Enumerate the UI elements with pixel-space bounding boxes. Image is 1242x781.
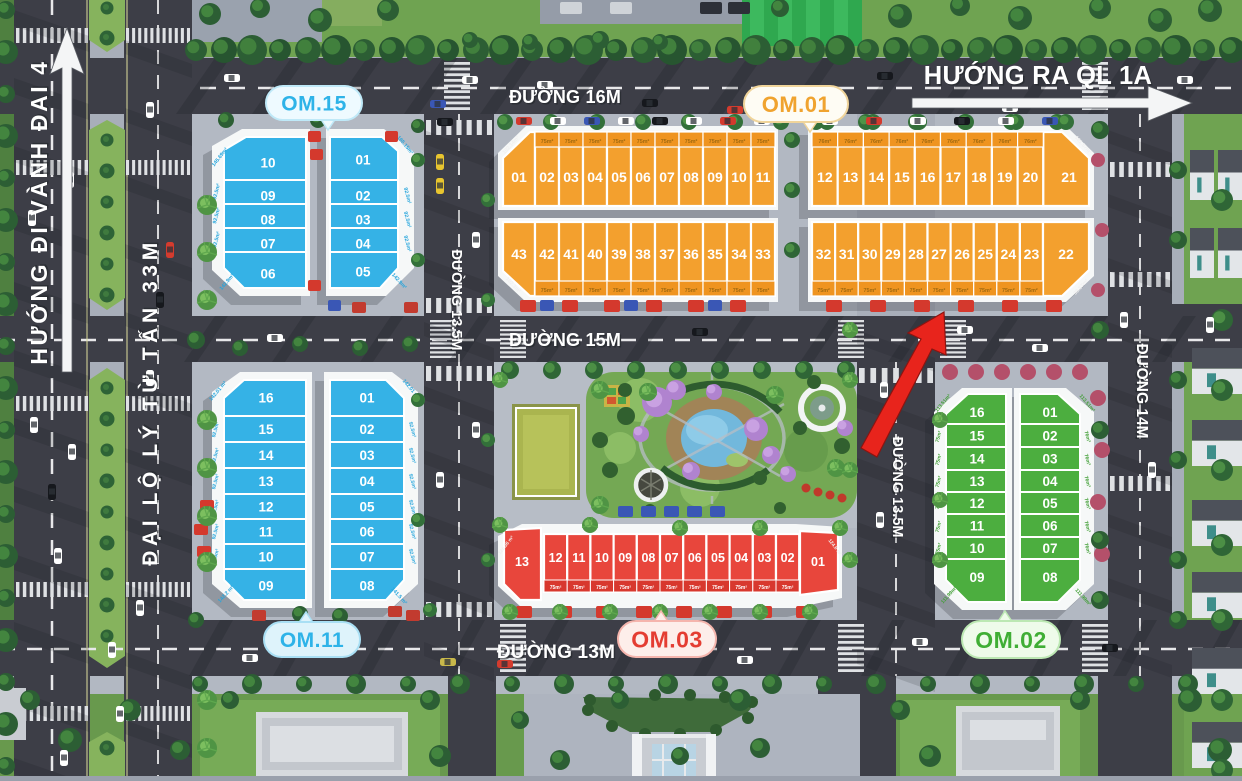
- svg-text:13: 13: [515, 555, 529, 569]
- svg-text:31: 31: [839, 246, 855, 262]
- svg-text:25: 25: [977, 246, 993, 262]
- svg-text:75m²: 75m²: [637, 139, 650, 145]
- svg-text:75m²: 75m²: [541, 139, 554, 145]
- svg-text:75m²: 75m²: [589, 288, 602, 294]
- svg-text:08: 08: [641, 551, 655, 565]
- svg-text:02: 02: [359, 422, 374, 437]
- svg-text:75m²: 75m²: [619, 585, 631, 591]
- svg-text:04: 04: [359, 474, 375, 489]
- svg-text:06: 06: [688, 551, 702, 565]
- svg-text:09: 09: [258, 579, 273, 594]
- svg-text:ĐƯỜNG 13.5M: ĐƯỜNG 13.5M: [889, 437, 907, 538]
- svg-text:75m²: 75m²: [910, 288, 923, 294]
- svg-text:36: 36: [683, 246, 699, 262]
- svg-text:76m²: 76m²: [921, 139, 934, 145]
- svg-text:08: 08: [683, 169, 699, 185]
- svg-text:26: 26: [954, 246, 970, 262]
- svg-text:ĐƯỜNG 15M: ĐƯỜNG 15M: [509, 329, 621, 350]
- svg-text:75m²: 75m²: [1002, 288, 1015, 294]
- svg-text:76m²: 76m²: [973, 139, 986, 145]
- svg-text:HƯỚNG ĐI VÀNH ĐAI 4: HƯỚNG ĐI VÀNH ĐAI 4: [25, 59, 52, 364]
- svg-text:12: 12: [817, 169, 833, 185]
- svg-text:02: 02: [781, 551, 795, 565]
- svg-text:34: 34: [731, 246, 747, 262]
- svg-text:75m²: 75m²: [782, 585, 794, 591]
- svg-text:OM.11: OM.11: [280, 629, 344, 652]
- svg-text:07: 07: [1042, 541, 1057, 556]
- svg-text:75m²: 75m²: [712, 585, 724, 591]
- svg-text:06: 06: [359, 525, 375, 540]
- svg-text:75m²: 75m²: [840, 288, 853, 294]
- svg-text:ĐƯỜNG 14M: ĐƯỜNG 14M: [1133, 344, 1151, 439]
- svg-text:75m²: 75m²: [613, 288, 626, 294]
- svg-text:75m²: 75m²: [733, 139, 746, 145]
- svg-text:76m²: 76m²: [844, 139, 857, 145]
- svg-text:75m²: 75m²: [733, 288, 746, 294]
- svg-text:17: 17: [946, 169, 962, 185]
- svg-text:75m²: 75m²: [735, 585, 747, 591]
- svg-text:10: 10: [969, 541, 984, 556]
- svg-text:75m²: 75m²: [979, 288, 992, 294]
- svg-text:08: 08: [359, 579, 375, 594]
- svg-text:08: 08: [1042, 570, 1058, 585]
- svg-text:75m²: 75m²: [709, 288, 722, 294]
- svg-text:35: 35: [707, 246, 723, 262]
- svg-text:19: 19: [997, 169, 1013, 185]
- svg-text:OM.03: OM.03: [631, 626, 703, 652]
- svg-text:40: 40: [587, 246, 603, 262]
- svg-text:75m²: 75m²: [817, 288, 830, 294]
- svg-text:OM.01: OM.01: [762, 92, 831, 117]
- svg-text:27: 27: [931, 246, 947, 262]
- svg-text:75m²: 75m²: [596, 585, 608, 591]
- svg-text:75m²: 75m²: [685, 139, 698, 145]
- svg-text:14: 14: [258, 448, 274, 463]
- svg-text:13: 13: [258, 474, 274, 489]
- svg-text:10: 10: [595, 551, 609, 565]
- svg-text:02: 02: [539, 169, 555, 185]
- svg-text:23: 23: [1024, 246, 1040, 262]
- svg-text:76m²: 76m²: [998, 139, 1011, 145]
- svg-text:75m²: 75m²: [709, 139, 722, 145]
- svg-text:75m²: 75m²: [613, 139, 626, 145]
- svg-text:06: 06: [635, 169, 651, 185]
- svg-text:32: 32: [816, 246, 832, 262]
- svg-text:16: 16: [258, 391, 274, 406]
- svg-text:11: 11: [259, 525, 274, 540]
- svg-text:04: 04: [1042, 474, 1058, 489]
- svg-text:09: 09: [969, 570, 984, 585]
- svg-text:07: 07: [359, 550, 374, 565]
- svg-text:75m²: 75m²: [661, 139, 674, 145]
- svg-text:03: 03: [1042, 452, 1058, 467]
- svg-text:75m²: 75m²: [956, 288, 969, 294]
- svg-text:75m²: 75m²: [1025, 288, 1038, 294]
- svg-text:75m²: 75m²: [863, 288, 876, 294]
- svg-text:09: 09: [618, 551, 632, 565]
- svg-text:15: 15: [258, 422, 274, 437]
- svg-text:75m²: 75m²: [661, 288, 674, 294]
- svg-text:75m²: 75m²: [685, 288, 698, 294]
- svg-text:06: 06: [260, 267, 276, 282]
- svg-text:10: 10: [731, 169, 747, 185]
- svg-text:OM.15: OM.15: [281, 93, 347, 116]
- svg-text:76m²: 76m²: [1024, 139, 1037, 145]
- svg-text:75m²: 75m²: [757, 288, 770, 294]
- svg-text:11: 11: [756, 169, 771, 185]
- svg-text:75m²: 75m²: [589, 139, 602, 145]
- svg-text:75m²: 75m²: [637, 288, 650, 294]
- svg-text:HƯỚNG RA QL 1A: HƯỚNG RA QL 1A: [924, 60, 1152, 90]
- svg-text:12: 12: [969, 496, 984, 511]
- svg-text:08: 08: [260, 213, 276, 228]
- svg-text:22: 22: [1058, 246, 1074, 262]
- svg-text:37: 37: [659, 246, 675, 262]
- svg-text:75m²: 75m²: [666, 585, 678, 591]
- svg-text:05: 05: [359, 500, 375, 515]
- svg-text:28: 28: [908, 246, 924, 262]
- svg-text:01: 01: [511, 169, 527, 185]
- svg-text:75m²: 75m²: [933, 288, 946, 294]
- svg-text:ĐƯỜNG 13.5M: ĐƯỜNG 13.5M: [448, 250, 466, 351]
- svg-text:75m²: 75m²: [759, 585, 771, 591]
- svg-text:15: 15: [894, 169, 910, 185]
- svg-text:03: 03: [563, 169, 579, 185]
- svg-text:04: 04: [734, 551, 748, 565]
- svg-text:03: 03: [355, 213, 371, 228]
- svg-text:76m²: 76m²: [896, 139, 909, 145]
- svg-text:76m²: 76m²: [947, 139, 960, 145]
- svg-text:ĐƯỜNG 13M: ĐƯỜNG 13M: [497, 641, 615, 663]
- svg-text:09: 09: [260, 189, 275, 204]
- svg-text:29: 29: [885, 246, 901, 262]
- svg-text:11: 11: [970, 519, 985, 534]
- svg-text:14: 14: [969, 452, 985, 467]
- svg-text:ĐẠI LỘ LÝ TỪ TẤN 33M: ĐẠI LỘ LÝ TỪ TẤN 33M: [138, 238, 162, 566]
- svg-text:05: 05: [355, 265, 371, 280]
- svg-text:01: 01: [359, 391, 375, 406]
- svg-text:07: 07: [659, 169, 675, 185]
- svg-text:20: 20: [1023, 169, 1039, 185]
- svg-text:03: 03: [359, 448, 375, 463]
- svg-text:13: 13: [843, 169, 859, 185]
- svg-text:ĐƯỜNG 16M: ĐƯỜNG 16M: [509, 86, 621, 107]
- svg-text:06: 06: [1042, 519, 1058, 534]
- svg-text:75m²: 75m²: [565, 139, 578, 145]
- svg-text:OM.02: OM.02: [975, 627, 1047, 653]
- svg-text:75m²: 75m²: [565, 288, 578, 294]
- svg-text:43: 43: [511, 246, 527, 262]
- svg-text:16: 16: [920, 169, 936, 185]
- svg-text:75m²: 75m²: [887, 288, 900, 294]
- svg-text:76m²: 76m²: [870, 139, 883, 145]
- svg-text:39: 39: [611, 246, 627, 262]
- svg-text:01: 01: [811, 555, 825, 569]
- svg-text:76m²: 76m²: [819, 139, 832, 145]
- svg-text:04: 04: [587, 169, 603, 185]
- svg-text:09: 09: [707, 169, 723, 185]
- svg-text:05: 05: [611, 169, 627, 185]
- svg-text:33: 33: [755, 246, 771, 262]
- svg-text:75m²: 75m²: [689, 585, 701, 591]
- svg-text:75m²: 75m²: [573, 585, 585, 591]
- svg-text:03: 03: [757, 551, 771, 565]
- svg-text:24: 24: [1001, 246, 1017, 262]
- svg-text:12: 12: [549, 551, 563, 565]
- svg-text:10: 10: [260, 156, 275, 171]
- svg-text:11: 11: [572, 551, 585, 565]
- svg-text:01: 01: [355, 153, 371, 168]
- svg-text:75m²: 75m²: [643, 585, 655, 591]
- svg-text:18: 18: [971, 169, 987, 185]
- svg-text:21: 21: [1061, 169, 1077, 185]
- svg-text:16: 16: [969, 405, 985, 420]
- svg-text:15: 15: [969, 429, 985, 444]
- svg-text:13: 13: [969, 474, 985, 489]
- svg-text:12: 12: [258, 500, 273, 515]
- svg-text:04: 04: [355, 237, 371, 252]
- svg-text:02: 02: [355, 189, 370, 204]
- svg-text:10: 10: [258, 550, 273, 565]
- svg-text:05: 05: [1042, 496, 1058, 511]
- svg-text:38: 38: [635, 246, 651, 262]
- svg-text:42: 42: [539, 246, 555, 262]
- svg-text:30: 30: [862, 246, 878, 262]
- svg-text:05: 05: [711, 551, 725, 565]
- svg-text:75m²: 75m²: [757, 139, 770, 145]
- svg-text:02: 02: [1042, 429, 1057, 444]
- svg-text:14: 14: [868, 169, 884, 185]
- svg-text:75m²: 75m²: [541, 288, 554, 294]
- svg-text:41: 41: [563, 246, 579, 262]
- svg-text:07: 07: [260, 237, 275, 252]
- svg-text:75m²: 75m²: [550, 585, 562, 591]
- svg-text:01: 01: [1042, 405, 1058, 420]
- svg-text:07: 07: [665, 551, 679, 565]
